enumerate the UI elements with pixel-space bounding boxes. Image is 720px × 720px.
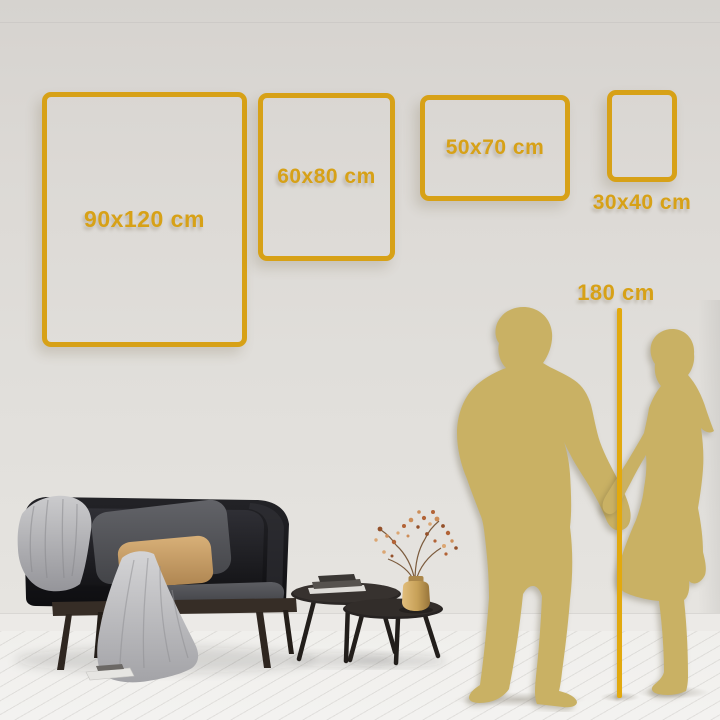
brass-vase <box>402 581 430 611</box>
wall-seam <box>0 22 720 23</box>
book-stack <box>308 574 366 594</box>
size-label-50x70: 50x70 cm <box>446 136 545 160</box>
height-ruler-line <box>617 308 622 698</box>
size-label-90x120: 90x120 cm <box>84 206 205 233</box>
height-reference-label: 180 cm <box>536 280 696 306</box>
size-frame-50x70: 50x70 cm <box>420 95 570 201</box>
size-label-30x40: 30x40 cm <box>572 191 712 215</box>
size-frame-60x80: 60x80 cm <box>258 93 395 261</box>
couple-silhouette <box>430 288 720 712</box>
size-guide-scene: 90x120 cm 60x80 cm 50x70 cm 30x40 cm 180… <box>0 0 720 720</box>
size-label-60x80: 60x80 cm <box>277 165 376 189</box>
size-frame-90x120: 90x120 cm <box>42 92 247 347</box>
size-frame-30x40 <box>607 90 677 182</box>
arm-blanket <box>18 496 92 592</box>
